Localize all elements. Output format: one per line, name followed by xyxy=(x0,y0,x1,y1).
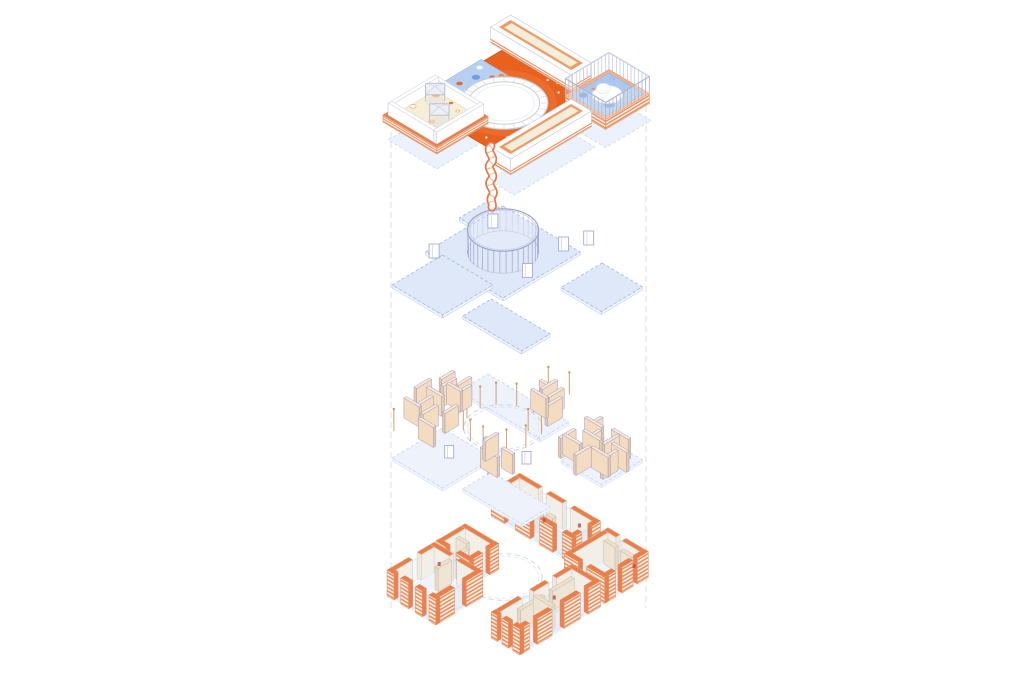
shade-canopy xyxy=(430,104,449,116)
level-partition-panels xyxy=(392,366,642,527)
door-frame xyxy=(445,445,454,458)
exploded-axonometric-diagram xyxy=(0,0,1024,683)
east-room xyxy=(491,564,600,655)
shade-canopy xyxy=(426,83,445,95)
door-frame xyxy=(488,214,498,228)
level-floor-plates-colonnade xyxy=(392,201,642,354)
door-frame xyxy=(559,237,569,251)
door-frame xyxy=(522,264,532,278)
door-frame xyxy=(429,244,439,258)
door-frame xyxy=(522,451,531,464)
door-frame xyxy=(584,231,594,245)
level-roof-plan xyxy=(383,15,651,207)
diagram-canvas xyxy=(0,0,1024,683)
